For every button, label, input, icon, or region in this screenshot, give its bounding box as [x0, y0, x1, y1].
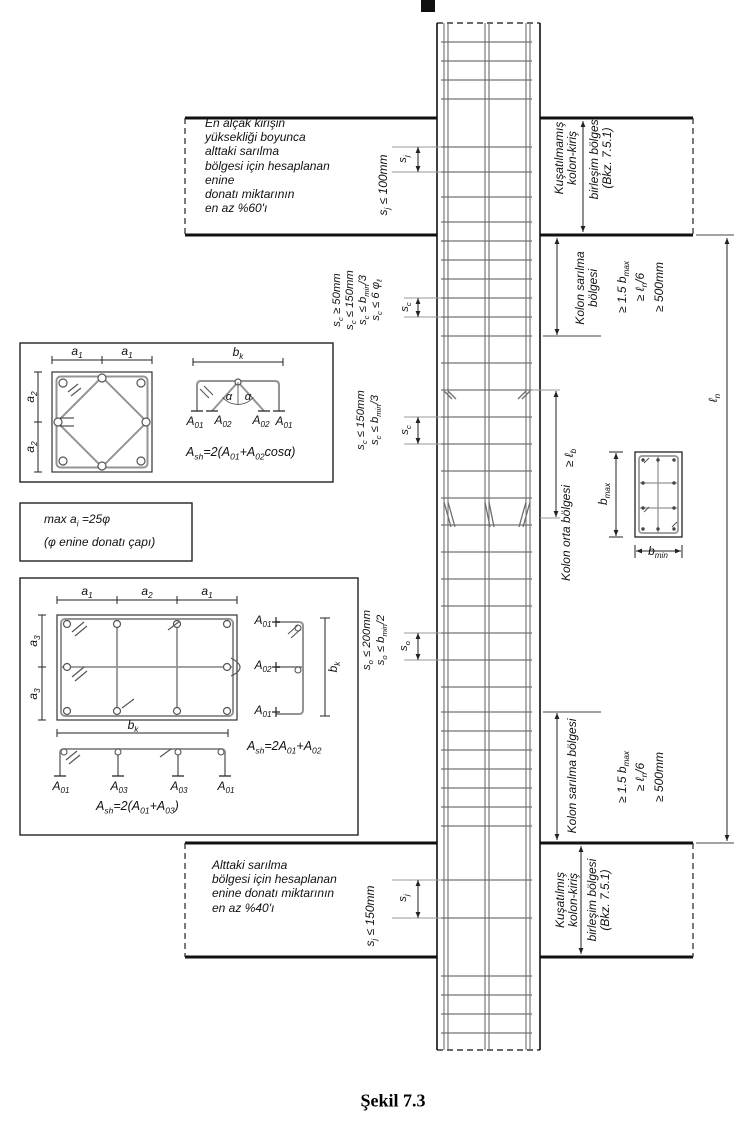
page-corner-mark [421, 0, 435, 12]
detail-box-rect [20, 578, 358, 835]
confinement-bottom-rule-2: ≥ ℓn/6 [633, 763, 649, 791]
square-bk-dim: bk [233, 345, 244, 361]
sj-top-dim-label: sj [397, 155, 411, 162]
so-rule-1: so ≤ 200mm [361, 610, 375, 670]
confinement-top-line-2: bölgesi [586, 269, 600, 307]
joint-unconfined-line-1: Kuşatılmamış [552, 122, 566, 195]
middle-zone-label: Kolon orta bölgesi [559, 485, 573, 581]
note-box-line-1: max ai =25φ [44, 512, 110, 528]
sj-bottom-dim-label: sj [397, 894, 411, 901]
rect-formula-side: Ash=2A01+A02 [247, 739, 322, 756]
sc-mid-dim-label: sc [399, 425, 413, 435]
column-stirrups [441, 42, 532, 1033]
rect-bk-bottom-dim: bk [128, 718, 139, 734]
figure-caption: Şekil 7.3 [360, 1091, 425, 1112]
rect-formula-bottom: Ash=2(A01+A03) [96, 799, 179, 816]
bmin-dim-label: bmin [648, 544, 668, 560]
note-box-line-2: (φ enine donatı çapı) [44, 535, 155, 549]
rect-a3-bottom: a3 [26, 688, 42, 699]
sc-mid-rule-1: sc ≤ 150mm [355, 390, 369, 450]
joint-confined-line-4: (Bkz. 7.5.1) [598, 869, 612, 930]
rect-a3-top: a3 [26, 635, 42, 646]
square-a2-bottom: a2 [23, 441, 39, 452]
rect-bottom-leg-3: A03 [170, 779, 187, 795]
joint-confined-line-3: birleşim bölgesi [585, 859, 599, 942]
alpha-right: α [245, 391, 251, 403]
rect-bottom-leg-1: A01 [52, 779, 69, 795]
confinement-bottom-rule-1: ≥ 1.5 bmax [615, 751, 631, 803]
square-a1-left: a1 [71, 344, 82, 360]
sc-top-dim-label: sc [399, 302, 413, 312]
sc-top-rule-4: sc ≤ 6 φℓ [370, 279, 384, 320]
rect-a1-right: a1 [201, 584, 212, 600]
rect-bottom-leg-4: A01 [217, 779, 234, 795]
square-leg-4: A01 [275, 414, 292, 430]
square-a2-top: a2 [23, 391, 39, 402]
rect-bottom-leg-2: A03 [110, 779, 127, 795]
column-section-small [635, 452, 682, 537]
confinement-top-rule-3: ≥ 500mm [652, 262, 666, 312]
ln-dim-label: ℓn [706, 394, 722, 402]
rect-side-leg-2: A02 [254, 658, 271, 674]
sj-bottom-rule-label: sj ≤ 150mm [363, 885, 379, 946]
joint-unconfined-line-4: (Bkz. 7.5.1) [600, 127, 614, 188]
rect-bk-side-dim: bk [326, 662, 342, 673]
square-a1-right: a1 [121, 344, 132, 360]
square-leg-1: A01 [186, 414, 203, 430]
column-confinement-figure: En alçak kirişin yüksekliği boyunca altt… [0, 0, 751, 1123]
lap-length-label: ≥ ℓb [562, 449, 578, 467]
joint-confined-line-1: Kuşatılmış [553, 872, 567, 928]
square-formula: Ash=2(A01+A02cosα) [186, 445, 295, 462]
confinement-bottom-label: Kolon sarılma bölgesi [565, 719, 579, 834]
confinement-bottom-rule-3: ≥ 500mm [652, 752, 666, 802]
rect-side-leg-3: A01 [254, 703, 271, 719]
alpha-left: α [226, 391, 232, 403]
confinement-top-line-1: Kolon sarılma [573, 251, 587, 324]
so-rule-2: so ≤ bmin/2 [375, 615, 389, 666]
joint-confined-line-2: kolon-kiriş [566, 873, 580, 927]
confinement-top-rule-2: ≥ ℓn/6 [633, 273, 649, 301]
square-leg-3: A02 [252, 413, 269, 429]
so-dim-label: so [398, 641, 412, 651]
bmax-dim-label: bmax [596, 483, 612, 505]
extension-ticks [392, 147, 560, 918]
joint-unconfined-line-2: kolon-kiriş [565, 131, 579, 185]
note-top-left: En alçak kirişin yüksekliği boyunca altt… [205, 116, 385, 215]
rect-a2-mid: a2 [141, 584, 152, 600]
confinement-top-rule-1: ≥ 1.5 bmax [615, 261, 631, 313]
square-leg-2: A02 [214, 413, 231, 429]
rect-side-leg-1: A01 [254, 613, 271, 629]
joint-unconfined-line-3: birleşim bölgesi [587, 117, 601, 200]
rect-a1-left: a1 [81, 584, 92, 600]
sj-top-rule-label: sj ≤ 100mm [376, 154, 392, 215]
sc-mid-rule-2: sc ≤ bmin/3 [369, 395, 383, 445]
column-rebars [444, 23, 530, 1050]
